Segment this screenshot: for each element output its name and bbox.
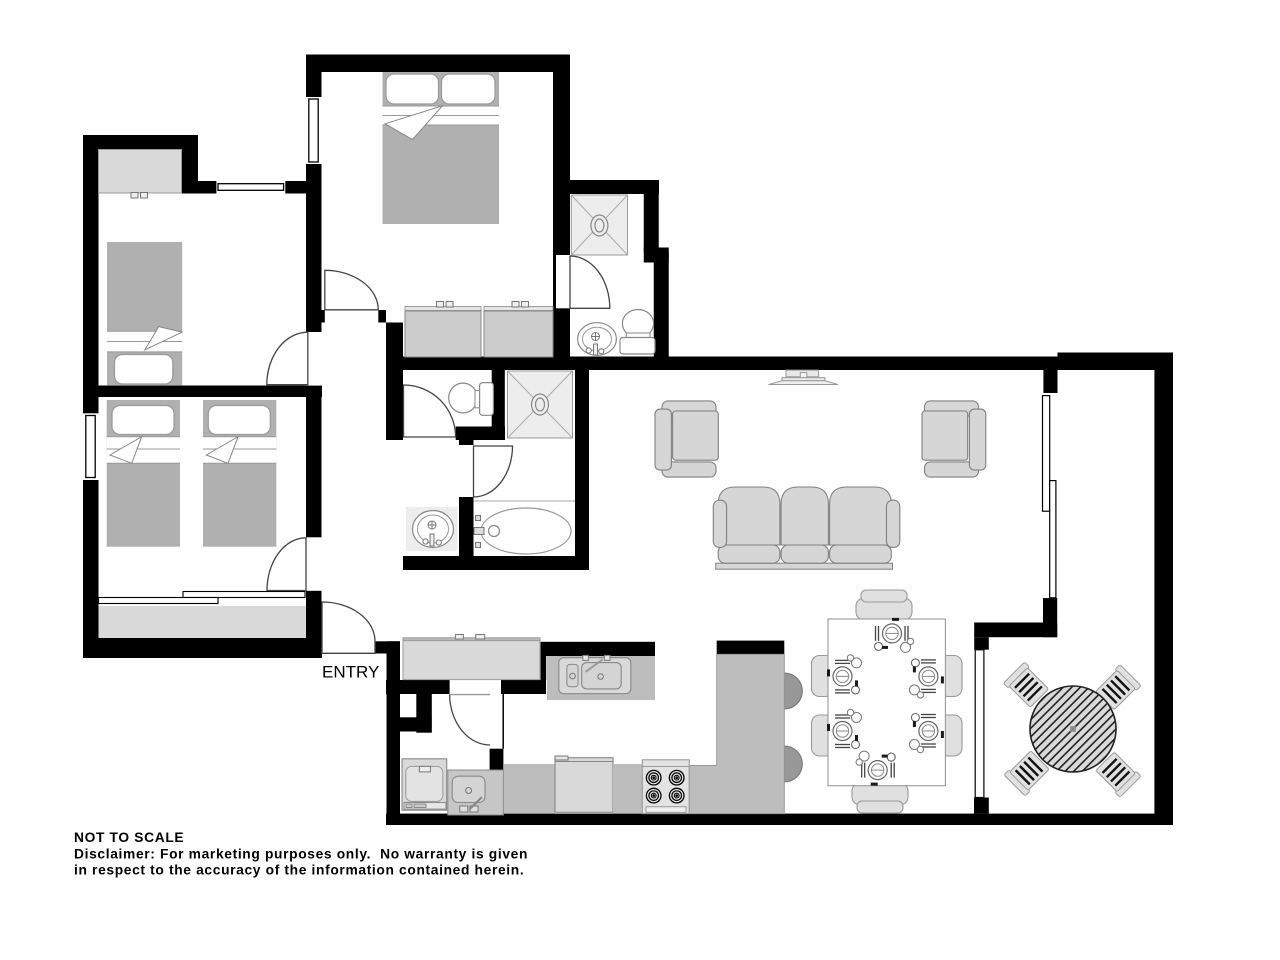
svg-text:Disclaimer: For marketing purp: Disclaimer: For marketing purposes only.…: [74, 847, 528, 862]
svg-text:in respect to the accuracy of: in respect to the accuracy of the inform…: [74, 863, 524, 878]
svg-text:NOT TO SCALE: NOT TO SCALE: [74, 830, 184, 845]
svg-text:ENTRY: ENTRY: [322, 663, 379, 682]
